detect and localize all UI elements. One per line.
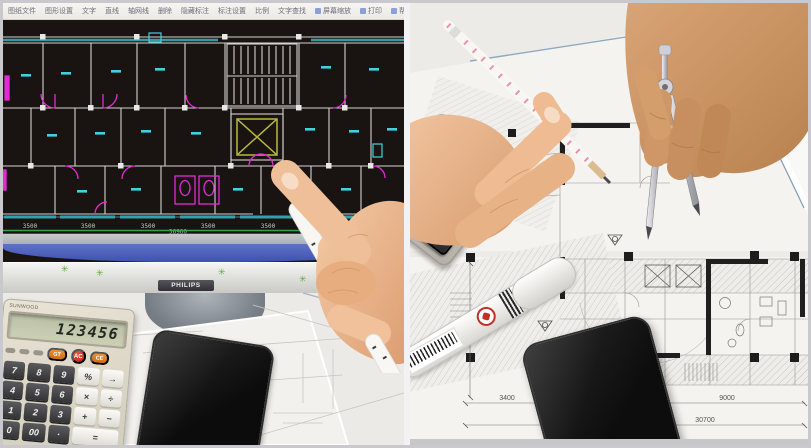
leaf-decal-icon: ✳: [218, 268, 226, 277]
calc-key-ce[interactable]: CE: [89, 351, 110, 366]
menu-item[interactable]: 图纸文件: [8, 6, 36, 16]
menu-item[interactable]: 轴网线: [128, 6, 149, 16]
calc-mini-key[interactable]: [19, 349, 29, 355]
menu-item[interactable]: 文字查找: [278, 6, 306, 16]
calculator-display-value: 123456: [55, 320, 120, 343]
calculator: SUNWOOD 123456 GT AC CE 7 8 9 % → 4 5 6: [3, 298, 135, 445]
calc-key-plus[interactable]: +: [73, 407, 96, 426]
menu-item[interactable]: 文字: [82, 6, 96, 16]
calc-key-8[interactable]: 8: [27, 363, 50, 382]
cad-menubar: 图纸文件 图形设置 文字 直线 轴网线 删除 隐藏标注 标注设置 比例 文字查找…: [3, 3, 404, 20]
calc-key-minus[interactable]: −: [98, 409, 121, 428]
curled-fingers: [316, 261, 376, 305]
menu-item[interactable]: 隐藏标注: [181, 6, 209, 16]
calc-key-percent[interactable]: %: [77, 367, 100, 386]
printer-icon: [360, 8, 366, 14]
calculator-keypad: 7 8 9 % → 4 5 6 × ÷ 1 2 3 + − 0 00 · =: [3, 360, 124, 445]
thumb: [340, 318, 378, 333]
calc-key-00[interactable]: 00: [22, 422, 45, 441]
right-photo-panel: 3400 9000 30700 0 0 1 4: [410, 3, 808, 445]
help-icon: [391, 8, 397, 14]
menu-item[interactable]: 删除: [158, 6, 172, 16]
working-hands: [410, 3, 808, 445]
menu-tool-zoom[interactable]: 屏幕缩放: [315, 6, 351, 16]
calc-key-arrow[interactable]: →: [101, 369, 124, 388]
calc-key-0[interactable]: 0: [3, 420, 21, 439]
dim-segment: 3500: [201, 223, 216, 230]
menu-item[interactable]: 比例: [255, 6, 269, 16]
menu-tool-help[interactable]: 帮助: [391, 6, 404, 16]
calc-key-ac[interactable]: AC: [70, 348, 86, 364]
menu-item[interactable]: 标注设置: [218, 6, 246, 16]
calc-key-7[interactable]: 7: [3, 360, 26, 379]
calc-mini-key[interactable]: [33, 350, 43, 356]
calc-key-dot[interactable]: ·: [47, 425, 70, 444]
menu-tool-print[interactable]: 打印: [360, 6, 382, 16]
photo-collage: 图纸文件 图形设置 文字 直线 轴网线 删除 隐藏标注 标注设置 比例 文字查找…: [0, 0, 811, 448]
leaf-decal-icon: ✳: [61, 265, 69, 274]
table-edge: [410, 439, 808, 445]
calc-key-2[interactable]: 2: [24, 402, 47, 421]
calc-key-divide[interactable]: ÷: [99, 389, 122, 408]
monitor-brand-badge: PHILIPS: [158, 280, 214, 291]
calc-key-4[interactable]: 4: [3, 380, 24, 399]
calc-key-6[interactable]: 6: [51, 385, 74, 404]
calc-key-3[interactable]: 3: [49, 405, 72, 424]
calc-key-5[interactable]: 5: [26, 383, 49, 402]
pointing-hand: [228, 133, 404, 373]
calc-key-equals[interactable]: =: [71, 427, 118, 445]
leaf-decal-icon: ✳: [96, 269, 104, 278]
dim-segment: 3500: [141, 223, 156, 230]
dim-segment: 3500: [81, 223, 96, 230]
dim-segment: 3500: [23, 223, 38, 230]
calc-key-1[interactable]: 1: [3, 400, 22, 419]
menu-item[interactable]: 直线: [105, 6, 119, 16]
calc-key-gt[interactable]: GT: [47, 347, 68, 362]
magnifier-icon: [315, 8, 321, 14]
left-photo-panel: 图纸文件 图形设置 文字 直线 轴网线 删除 隐藏标注 标注设置 比例 文字查找…: [3, 3, 404, 445]
menu-item[interactable]: 图形设置: [45, 6, 73, 16]
calc-key-multiply[interactable]: ×: [75, 387, 98, 406]
calc-key-9[interactable]: 9: [52, 365, 75, 384]
calc-mini-key[interactable]: [5, 348, 15, 354]
